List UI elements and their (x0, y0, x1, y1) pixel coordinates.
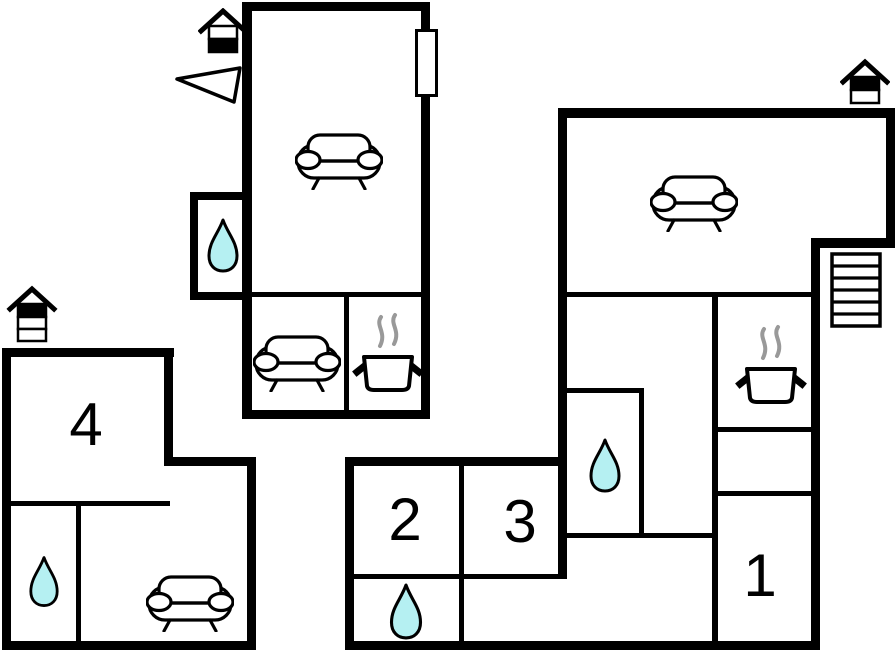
house-level-icon (198, 8, 248, 54)
wall-segment (242, 410, 430, 419)
water-drop-icon (206, 218, 240, 274)
wall-segment (344, 296, 349, 411)
wall-segment (567, 533, 712, 538)
sofa-icon (650, 174, 738, 232)
sofa-icon (295, 132, 383, 190)
water-drop-icon (588, 438, 622, 494)
wall-segment (558, 108, 567, 579)
house-level-icon (840, 58, 890, 106)
wall-segment (164, 457, 256, 466)
room-1-label: 1 (743, 546, 776, 606)
stairs-icon (830, 252, 882, 328)
wall-segment (190, 292, 250, 300)
wall-segment (718, 491, 811, 496)
wall-segment (164, 348, 173, 466)
stove-icon (350, 310, 426, 392)
wall-segment (812, 238, 895, 248)
wall-segment (718, 427, 811, 432)
wall-segment (567, 292, 811, 297)
wall-segment (190, 192, 250, 200)
wall-segment (190, 192, 198, 300)
wall-segment (2, 501, 170, 506)
room-3-label: 3 (503, 492, 536, 552)
wall-segment (242, 2, 430, 11)
wall-segment (558, 108, 895, 118)
wall-segment (345, 641, 820, 650)
wall-segment (2, 641, 256, 650)
sofa-icon (146, 574, 234, 632)
house-level-icon (6, 285, 58, 343)
wall-segment (459, 466, 464, 646)
water-drop-icon (388, 583, 424, 641)
wall-segment (345, 457, 567, 466)
wall-segment (247, 457, 256, 650)
wall-segment (2, 348, 11, 650)
window-marker (415, 29, 438, 97)
north-arrow-icon (172, 62, 248, 108)
sofa-icon (253, 334, 341, 392)
wall-segment (250, 292, 423, 297)
room-2-label: 2 (388, 490, 421, 550)
wall-segment (712, 297, 718, 641)
water-drop-icon (28, 555, 60, 609)
wall-segment (639, 388, 644, 538)
room-4-label: 4 (69, 395, 102, 455)
wall-segment (345, 457, 354, 650)
wall-segment (811, 238, 820, 650)
wall-segment (350, 574, 563, 579)
wall-segment (76, 501, 81, 650)
wall-segment (567, 388, 643, 393)
wall-segment (886, 108, 895, 248)
floor-plan-canvas: 4 (0, 0, 895, 652)
wall-segment (2, 348, 174, 357)
stove-icon (733, 322, 809, 404)
